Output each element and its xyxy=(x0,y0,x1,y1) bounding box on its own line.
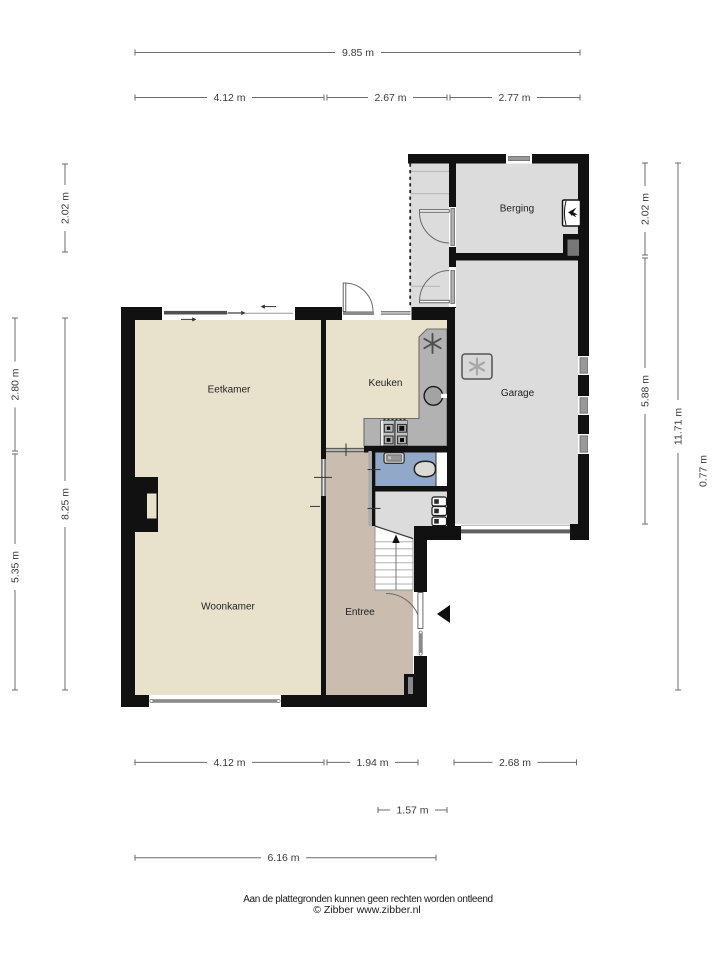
svg-text:1.57 m: 1.57 m xyxy=(396,805,428,817)
svg-text:2.02 m: 2.02 m xyxy=(640,193,652,225)
svg-text:© Zibber www.zibber.nl: © Zibber www.zibber.nl xyxy=(313,904,421,916)
svg-text:4.12 m: 4.12 m xyxy=(213,92,245,104)
svg-text:Keuken: Keuken xyxy=(369,378,403,389)
svg-text:11.71 m: 11.71 m xyxy=(673,408,685,445)
svg-text:Entree: Entree xyxy=(345,607,375,618)
svg-text:Garage: Garage xyxy=(501,388,535,399)
svg-text:2.77 m: 2.77 m xyxy=(498,92,530,104)
svg-text:2.68 m: 2.68 m xyxy=(499,757,531,769)
svg-text:2.02 m: 2.02 m xyxy=(60,192,72,224)
svg-text:6.16 m: 6.16 m xyxy=(267,852,299,864)
svg-text:2.67 m: 2.67 m xyxy=(374,92,406,104)
svg-text:Woonkamer: Woonkamer xyxy=(201,602,255,613)
svg-text:9.85 m: 9.85 m xyxy=(342,47,374,59)
svg-text:4.12 m: 4.12 m xyxy=(213,757,245,769)
svg-text:5.35 m: 5.35 m xyxy=(10,551,22,583)
svg-text:Berging: Berging xyxy=(500,204,534,215)
svg-text:5.88 m: 5.88 m xyxy=(640,375,652,407)
svg-text:0.77 m: 0.77 m xyxy=(698,455,710,487)
svg-text:Eetkamer: Eetkamer xyxy=(208,385,251,396)
svg-text:2.80 m: 2.80 m xyxy=(10,368,22,400)
svg-text:8.25 m: 8.25 m xyxy=(60,488,72,520)
svg-text:1.94 m: 1.94 m xyxy=(356,757,388,769)
